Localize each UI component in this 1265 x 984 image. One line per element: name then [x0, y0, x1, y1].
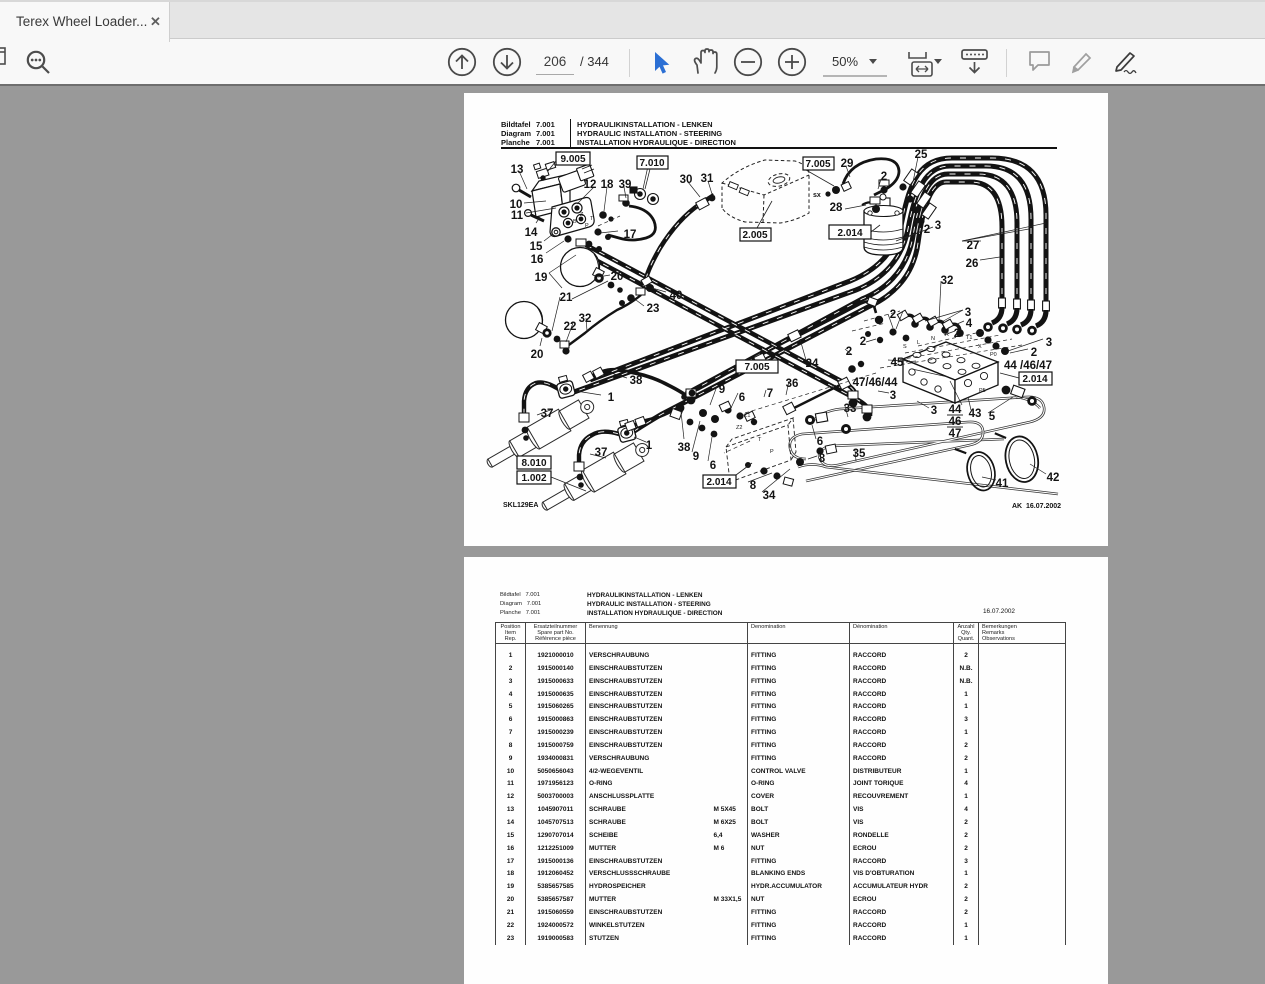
svg-text:44: 44	[949, 404, 962, 416]
svg-text:B: B	[573, 219, 577, 225]
svg-text:41: 41	[996, 478, 1009, 490]
svg-text:6: 6	[710, 460, 716, 472]
svg-text:37: 37	[595, 447, 608, 459]
svg-text:7: 7	[767, 388, 773, 400]
svg-text:28: 28	[830, 202, 843, 214]
svg-text:2: 2	[924, 224, 930, 236]
svg-text:44 /46/47: 44 /46/47	[1004, 360, 1052, 372]
svg-text:2.005: 2.005	[742, 230, 767, 241]
svg-text:34: 34	[763, 490, 776, 502]
svg-text:26: 26	[966, 258, 979, 270]
svg-text:1.002: 1.002	[521, 473, 546, 484]
svg-text:38: 38	[630, 375, 643, 387]
svg-text:13: 13	[511, 164, 524, 176]
svg-text:27: 27	[967, 240, 980, 252]
svg-text:20: 20	[531, 349, 544, 361]
svg-text:P: P	[770, 449, 774, 455]
svg-text:11: 11	[511, 210, 524, 222]
svg-text:2: 2	[846, 346, 852, 358]
svg-text:24: 24	[806, 358, 819, 370]
svg-text:15: 15	[530, 241, 543, 253]
svg-text:9: 9	[719, 384, 725, 396]
svg-text:R: R	[945, 332, 949, 338]
svg-text:17: 17	[624, 229, 637, 241]
svg-text:33: 33	[844, 403, 857, 415]
svg-text:38: 38	[678, 442, 691, 454]
svg-text:23: 23	[647, 303, 660, 315]
svg-text:8: 8	[819, 453, 826, 465]
svg-text:9: 9	[693, 451, 699, 463]
svg-text:1: 1	[646, 440, 653, 452]
svg-text:14: 14	[525, 227, 538, 239]
svg-text:S: S	[903, 344, 907, 350]
svg-text:25: 25	[915, 149, 928, 161]
svg-text:47/46/44: 47/46/44	[853, 377, 898, 389]
svg-text:42: 42	[1047, 472, 1060, 484]
svg-text:2: 2	[954, 328, 960, 340]
svg-text:2.014: 2.014	[706, 477, 731, 488]
svg-text:46: 46	[949, 416, 962, 428]
svg-text:6: 6	[817, 436, 823, 448]
svg-text:8: 8	[750, 480, 757, 492]
svg-text:40: 40	[670, 290, 683, 302]
svg-text:7.005: 7.005	[805, 159, 830, 170]
svg-text:3: 3	[890, 390, 896, 402]
svg-text:T1: T1	[966, 335, 972, 341]
svg-text:22: 22	[564, 321, 577, 333]
svg-text:37: 37	[541, 408, 554, 420]
svg-text:4: 4	[966, 318, 973, 330]
svg-text:P5: P5	[979, 388, 986, 394]
svg-text:P: P	[585, 223, 589, 229]
svg-text:20: 20	[611, 271, 624, 283]
svg-text:16: 16	[531, 254, 544, 266]
svg-text:1: 1	[608, 392, 615, 404]
svg-text:7.010: 7.010	[639, 158, 664, 169]
svg-text:2: 2	[860, 336, 866, 348]
svg-text:6: 6	[739, 392, 745, 404]
svg-text:2: 2	[1031, 347, 1037, 359]
svg-text:7.005: 7.005	[744, 362, 769, 373]
svg-text:T: T	[758, 437, 762, 443]
svg-text:31: 31	[701, 173, 714, 185]
svg-text:36: 36	[786, 378, 799, 390]
svg-text:47: 47	[949, 428, 962, 440]
svg-text:19: 19	[535, 272, 548, 284]
svg-text:3: 3	[935, 220, 941, 232]
svg-text:35: 35	[853, 448, 866, 460]
svg-text:12: 12	[584, 179, 597, 191]
svg-text:29: 29	[841, 158, 854, 170]
svg-text:21: 21	[560, 292, 573, 304]
svg-text:18: 18	[601, 179, 614, 191]
svg-text:9.005: 9.005	[560, 154, 585, 165]
svg-text:30: 30	[680, 174, 693, 186]
svg-text:Z1: Z1	[744, 413, 750, 419]
svg-text:X: X	[978, 344, 982, 350]
svg-text:L: L	[917, 340, 920, 346]
svg-text:43: 43	[969, 408, 982, 420]
svg-text:P0: P0	[990, 352, 997, 358]
svg-text:3: 3	[931, 405, 937, 417]
svg-text:3: 3	[1046, 337, 1052, 349]
svg-text:45: 45	[891, 357, 904, 369]
svg-text:sx: sx	[813, 192, 821, 199]
svg-text:Z2: Z2	[736, 425, 742, 431]
svg-text:2: 2	[881, 171, 887, 183]
svg-text:N: N	[931, 336, 935, 342]
svg-text:2.014: 2.014	[1022, 374, 1047, 385]
svg-text:2.014: 2.014	[837, 228, 862, 239]
svg-text:32: 32	[941, 275, 954, 287]
svg-text:2: 2	[890, 309, 896, 321]
svg-text:32: 32	[579, 313, 592, 325]
svg-text:39: 39	[619, 179, 632, 191]
svg-text:8.010: 8.010	[521, 458, 546, 469]
svg-text:5: 5	[989, 411, 996, 423]
